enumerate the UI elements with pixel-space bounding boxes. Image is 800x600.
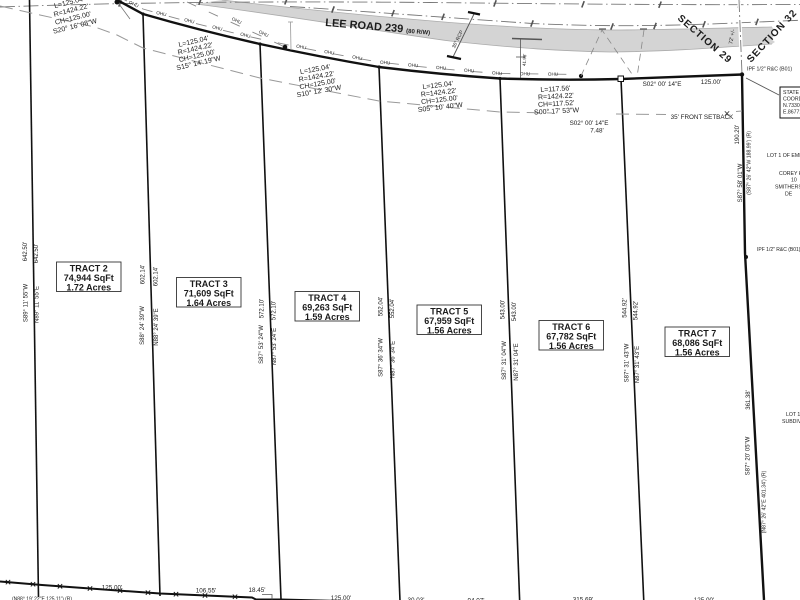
svg-text:642.50': 642.50' — [34, 244, 40, 264]
svg-text:642.50': 642.50' — [23, 242, 29, 262]
svg-text:(N87° 26' 42"E 401.34') (R): (N87° 26' 42"E 401.34') (R) — [762, 470, 768, 533]
svg-text:544.92': 544.92' — [634, 301, 640, 321]
svg-text:S87° 53' 24"W: S87° 53' 24"W — [259, 325, 265, 364]
svg-text:LOT 1 OF EMERALD: LOT 1 OF EMERALD — [767, 153, 800, 159]
svg-text:TRACT 5: TRACT 5 — [430, 306, 468, 316]
svg-text:N87° 53' 24"E: N87° 53' 24"E — [272, 328, 278, 365]
svg-text:543.00': 543.00' — [501, 300, 507, 320]
svg-text:OHU: OHU — [520, 71, 530, 76]
svg-text:S87° 36' 34"W: S87° 36' 34"W — [379, 338, 385, 377]
svg-text:602.14': 602.14' — [141, 265, 147, 285]
svg-text:(N88° 19' 22"E 125.11') (R): (N88° 19' 22"E 125.11') (R) — [12, 597, 72, 600]
svg-text:7.48': 7.48' — [590, 128, 603, 135]
svg-text:TRACT 4: TRACT 4 — [308, 293, 346, 303]
svg-text:S88° 24' 39"W: S88° 24' 39"W — [140, 306, 146, 345]
svg-text:190.20': 190.20' — [735, 125, 741, 145]
svg-text:N87° 31' 43"E: N87° 31' 43"E — [635, 346, 641, 383]
svg-text:1.56 Acres: 1.56 Acres — [549, 341, 594, 351]
svg-text:572.10': 572.10' — [260, 299, 266, 319]
svg-text:361.38': 361.38' — [746, 390, 752, 410]
svg-text:125.00': 125.00' — [701, 79, 721, 86]
svg-text:315.69': 315.69' — [573, 597, 593, 600]
svg-text:18.45': 18.45' — [249, 587, 266, 594]
svg-text:DE: DE — [785, 192, 793, 198]
svg-text:N89° 11' 55"E: N89° 11' 55"E — [35, 286, 41, 323]
svg-text:STATE PLANE: STATE PLANE — [783, 90, 800, 96]
svg-text:544.92': 544.92' — [623, 298, 629, 318]
svg-text:IPF 1/2" R&C (B01): IPF 1/2" R&C (B01) — [757, 247, 800, 253]
svg-text:OHU: OHU — [408, 62, 419, 68]
svg-text:OHU: OHU — [548, 72, 558, 77]
svg-text:572.10': 572.10' — [272, 301, 278, 321]
svg-text:TRACT 6: TRACT 6 — [552, 322, 590, 332]
svg-text:125.00': 125.00' — [331, 595, 351, 600]
svg-text:35' FRONT SETBACK: 35' FRONT SETBACK — [671, 114, 734, 121]
svg-text:552.04': 552.04' — [390, 299, 396, 319]
svg-text:(S87° 26' 42"W 188.99') (R): (S87° 26' 42"W 188.99') (R) — [747, 131, 753, 195]
svg-text:S89° 11' 55"W: S89° 11' 55"W — [24, 284, 30, 323]
svg-text:S87° 58' 01"W: S87° 58' 01"W — [738, 163, 744, 202]
svg-text:106.55': 106.55' — [196, 588, 216, 595]
svg-text:E.8677253.96: E.8677253.96 — [783, 110, 800, 116]
svg-text:N87° 31' 04"E: N87° 31' 04"E — [514, 343, 520, 380]
svg-text:S87° 20' 05"W: S87° 20' 05"W — [746, 436, 752, 475]
svg-text:OHU: OHU — [464, 68, 475, 74]
svg-text:1.56 Acres: 1.56 Acres — [427, 325, 472, 335]
svg-text:10: 10 — [791, 178, 797, 184]
svg-text:COORDINATES: COORDINATES — [783, 97, 800, 103]
svg-text:TRACT 3: TRACT 3 — [190, 279, 228, 289]
svg-text:N.7330919.19: N.7330919.19 — [783, 103, 800, 109]
svg-text:602.14': 602.14' — [154, 267, 160, 287]
svg-text:41.98': 41.98' — [522, 53, 528, 66]
svg-text:N87° 36' 34"E: N87° 36' 34"E — [391, 341, 397, 378]
svg-text:543.00': 543.00' — [512, 302, 518, 322]
svg-text:N88° 24' 39"E: N88° 24' 39"E — [154, 308, 160, 345]
svg-text:TRACT 2: TRACT 2 — [70, 263, 108, 273]
svg-text:TRACT 7: TRACT 7 — [678, 328, 716, 338]
svg-text:S87° 31' 04"W: S87° 31' 04"W — [502, 341, 508, 380]
svg-text:OHU: OHU — [380, 60, 391, 66]
svg-text:LOT 1: LOT 1 — [786, 412, 800, 418]
svg-text:OHU: OHU — [436, 65, 447, 71]
svg-text:552.04': 552.04' — [379, 297, 385, 317]
svg-text:1.64 Acres: 1.64 Acres — [186, 298, 231, 308]
svg-text:1.56 Acres: 1.56 Acres — [675, 347, 720, 357]
svg-text:OHU: OHU — [492, 70, 503, 76]
svg-text:SMITHERS: SMITHERS — [775, 185, 800, 191]
svg-text:125.00': 125.00' — [102, 585, 122, 592]
svg-text:IPF 1/2" R&C (B01): IPF 1/2" R&C (B01) — [747, 67, 792, 73]
svg-text:S02° 00' 14"E: S02° 00' 14"E — [643, 80, 682, 88]
svg-text:S87° 31' 43"W: S87° 31' 43"W — [625, 343, 631, 382]
svg-text:1.59 Acres: 1.59 Acres — [305, 312, 350, 322]
svg-text:1.72 Acres: 1.72 Acres — [66, 282, 111, 292]
svg-text:SUBDIV: SUBDIV — [782, 419, 800, 425]
svg-text:S02° 00' 14"E: S02° 00' 14"E — [570, 119, 609, 127]
svg-text:COREY H: COREY H — [779, 171, 800, 177]
